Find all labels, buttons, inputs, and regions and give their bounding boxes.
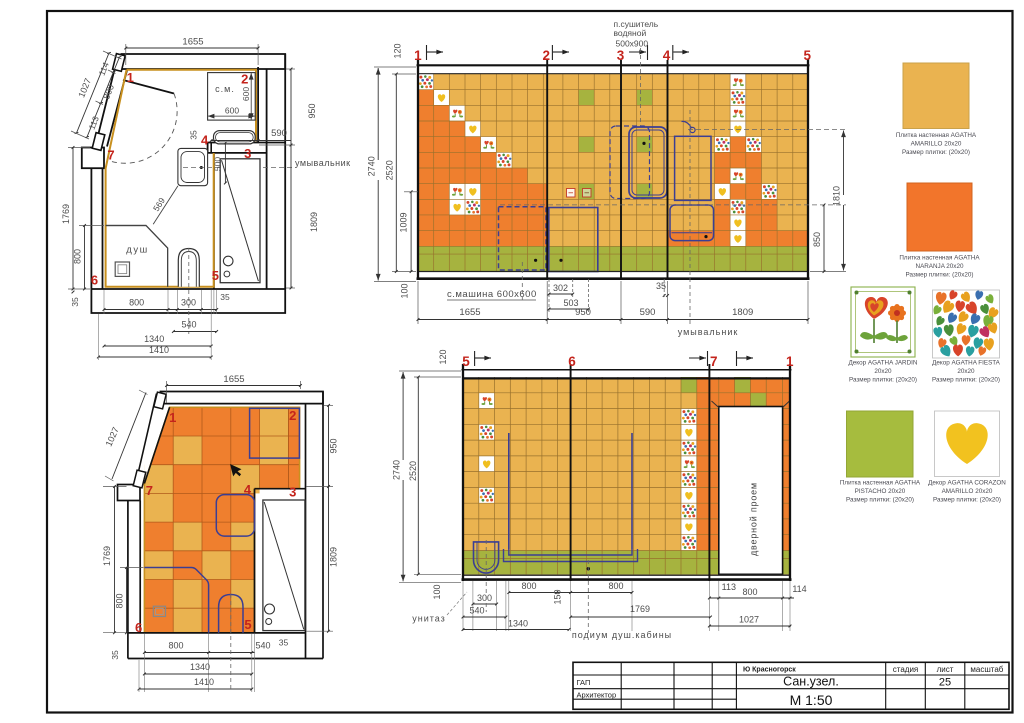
svg-text:AMARILLO 20х20: AMARILLO 20х20	[942, 488, 993, 495]
svg-text:душ: душ	[126, 245, 148, 256]
svg-text:лист: лист	[937, 665, 954, 674]
svg-text:600: 600	[225, 106, 239, 116]
svg-text:950: 950	[307, 103, 317, 118]
svg-text:1655: 1655	[182, 37, 203, 48]
svg-text:1: 1	[127, 70, 134, 85]
svg-text:850: 850	[812, 232, 822, 247]
svg-text:120: 120	[438, 349, 448, 364]
svg-text:2: 2	[542, 48, 550, 63]
svg-text:умывальник: умывальник	[678, 327, 739, 337]
svg-text:1769: 1769	[61, 204, 71, 224]
svg-text:2: 2	[241, 72, 248, 87]
svg-text:800: 800	[115, 593, 125, 608]
svg-text:7: 7	[710, 354, 718, 369]
svg-text:113: 113	[722, 582, 736, 592]
svg-text:7: 7	[107, 147, 114, 162]
svg-text:Размер плитки: (20х20): Размер плитки: (20х20)	[932, 376, 1000, 383]
svg-text:1009: 1009	[398, 212, 408, 232]
svg-text:1810: 1810	[832, 186, 842, 206]
svg-text:540: 540	[469, 606, 484, 616]
svg-text:5: 5	[244, 617, 251, 632]
svg-text:AMARILLO 20х20: AMARILLO 20х20	[911, 140, 962, 147]
svg-text:Размер плитки: (20х20): Размер плитки: (20х20)	[849, 376, 917, 383]
svg-text:35: 35	[279, 638, 289, 648]
svg-text:Размер плитки: (20х20): Размер плитки: (20х20)	[906, 271, 974, 278]
svg-text:600: 600	[241, 87, 251, 101]
svg-text:800: 800	[742, 587, 757, 597]
svg-text:100: 100	[400, 283, 410, 298]
svg-text:2520: 2520	[408, 461, 418, 481]
svg-text:масштаб: масштаб	[970, 665, 1003, 674]
svg-text:Сан.узел.: Сан.узел.	[783, 675, 839, 689]
svg-text:150: 150	[553, 589, 563, 604]
svg-text:Размер плитки: (20х20): Размер плитки: (20х20)	[933, 496, 1001, 503]
svg-text:1340: 1340	[190, 662, 210, 672]
svg-text:3: 3	[617, 48, 625, 63]
svg-text:с.м.: с.м.	[215, 84, 235, 94]
svg-text:590: 590	[271, 128, 287, 139]
svg-text:6: 6	[568, 354, 576, 369]
svg-text:1340: 1340	[508, 619, 528, 629]
svg-text:800: 800	[521, 581, 536, 591]
svg-text:PISTACHO 20х20: PISTACHO 20х20	[855, 488, 906, 495]
svg-text:Плитка настенная AGATHA: Плитка настенная AGATHA	[896, 132, 977, 139]
svg-text:5: 5	[804, 48, 812, 63]
svg-text:Размер плитки: (20х20): Размер плитки: (20х20)	[846, 496, 914, 503]
svg-text:унитаз: унитаз	[412, 614, 446, 624]
svg-text:ГАП: ГАП	[577, 678, 591, 687]
svg-text:800: 800	[168, 641, 183, 651]
svg-text:800: 800	[73, 249, 83, 264]
svg-text:Плитка настенная AGATHA: Плитка настенная AGATHA	[899, 255, 980, 262]
svg-text:1: 1	[169, 410, 176, 425]
svg-text:20х20: 20х20	[957, 368, 975, 375]
svg-text:5: 5	[462, 354, 470, 369]
svg-text:стадия: стадия	[893, 665, 919, 674]
svg-text:1: 1	[414, 48, 422, 63]
svg-text:1809: 1809	[329, 547, 339, 567]
svg-text:1027: 1027	[739, 615, 759, 625]
svg-text:Декор AGATHA JARDIN: Декор AGATHA JARDIN	[849, 360, 918, 367]
svg-text:умывальник: умывальник	[295, 158, 351, 168]
svg-text:500х900: 500х900	[616, 39, 649, 49]
svg-text:с.машина 600х600: с.машина 600х600	[447, 289, 537, 300]
svg-text:водяной: водяной	[614, 28, 647, 38]
svg-text:4: 4	[663, 48, 671, 63]
svg-text:120: 120	[393, 43, 403, 58]
svg-text:950: 950	[329, 438, 339, 453]
svg-text:100: 100	[432, 584, 442, 599]
svg-text:800: 800	[608, 581, 623, 591]
svg-text:35: 35	[110, 650, 120, 660]
svg-text:6: 6	[135, 620, 142, 635]
svg-text:25: 25	[939, 677, 951, 689]
svg-text:1655: 1655	[223, 374, 244, 385]
svg-text:1809: 1809	[309, 212, 319, 232]
svg-text:Декор AGATHA CORAZON: Декор AGATHA CORAZON	[928, 480, 1006, 487]
svg-text:М 1:50: М 1:50	[790, 692, 833, 708]
svg-text:2740: 2740	[366, 156, 376, 176]
svg-text:Размер плитки: (20х20): Размер плитки: (20х20)	[902, 149, 970, 156]
svg-text:1: 1	[786, 354, 794, 369]
svg-text:20х20: 20х20	[874, 368, 892, 375]
svg-text:5: 5	[212, 268, 219, 283]
svg-text:500: 500	[213, 157, 223, 171]
svg-text:503: 503	[563, 298, 578, 308]
svg-text:2740: 2740	[391, 460, 401, 480]
svg-text:6: 6	[91, 273, 98, 288]
svg-text:подиум душ.кабины: подиум душ.кабины	[572, 630, 672, 640]
svg-text:NARANJA 20х20: NARANJA 20х20	[916, 263, 964, 270]
svg-text:7: 7	[146, 483, 153, 498]
svg-text:3: 3	[244, 146, 251, 161]
svg-text:540: 540	[255, 641, 270, 651]
svg-text:800: 800	[129, 298, 144, 308]
svg-text:302: 302	[553, 283, 568, 293]
svg-text:4: 4	[244, 482, 252, 497]
svg-text:300: 300	[181, 298, 196, 308]
svg-text:590: 590	[640, 307, 656, 318]
svg-text:540: 540	[181, 320, 196, 330]
svg-text:дверной проем: дверной проем	[749, 482, 759, 556]
svg-text:1769: 1769	[102, 546, 112, 566]
svg-text:4: 4	[201, 133, 209, 148]
svg-text:35: 35	[189, 130, 199, 140]
svg-text:300: 300	[477, 593, 492, 603]
svg-text:1655: 1655	[459, 307, 480, 318]
svg-text:Плитка настенная AGATHA: Плитка настенная AGATHA	[840, 480, 921, 487]
svg-text:1809: 1809	[732, 307, 753, 318]
svg-text:Ю Красногорск: Ю Красногорск	[743, 667, 796, 674]
svg-text:1340: 1340	[144, 334, 164, 344]
svg-text:2: 2	[289, 408, 296, 423]
svg-text:114: 114	[792, 584, 806, 594]
svg-text:35: 35	[220, 292, 230, 302]
svg-text:1410: 1410	[194, 677, 214, 687]
svg-text:1410: 1410	[149, 345, 169, 355]
svg-text:2520: 2520	[385, 160, 395, 180]
svg-text:Архитектор: Архитектор	[577, 691, 617, 700]
svg-text:Декор AGATHA FIESTA: Декор AGATHA FIESTA	[932, 360, 1001, 367]
svg-text:1769: 1769	[630, 604, 650, 614]
svg-text:35: 35	[70, 297, 80, 307]
svg-text:3: 3	[289, 485, 296, 500]
